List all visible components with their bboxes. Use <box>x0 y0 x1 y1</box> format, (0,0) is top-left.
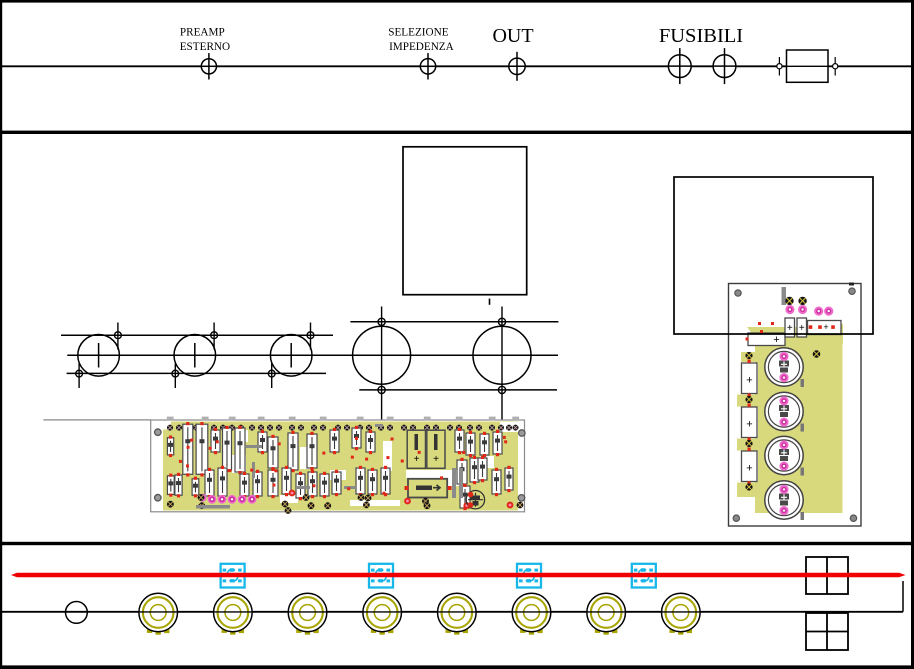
svg-text:ESTERNO: ESTERNO <box>180 41 230 53</box>
svg-text:+: + <box>773 334 779 346</box>
svg-text:+: + <box>414 454 420 465</box>
svg-text:+: + <box>799 323 805 334</box>
svg-text:FUSIBILI: FUSIBILI <box>659 25 743 47</box>
svg-text:IMPEDENZA: IMPEDENZA <box>389 41 454 53</box>
svg-text:+: + <box>746 419 752 431</box>
svg-text:SELEZIONE: SELEZIONE <box>388 26 448 38</box>
svg-text:+: + <box>823 322 828 332</box>
svg-text:+: + <box>746 463 752 475</box>
svg-text:+: + <box>787 323 793 334</box>
svg-text:PREAMP: PREAMP <box>180 26 225 38</box>
svg-text:+: + <box>433 454 439 465</box>
svg-text:OUT: OUT <box>492 25 533 47</box>
svg-text:+: + <box>746 375 752 387</box>
